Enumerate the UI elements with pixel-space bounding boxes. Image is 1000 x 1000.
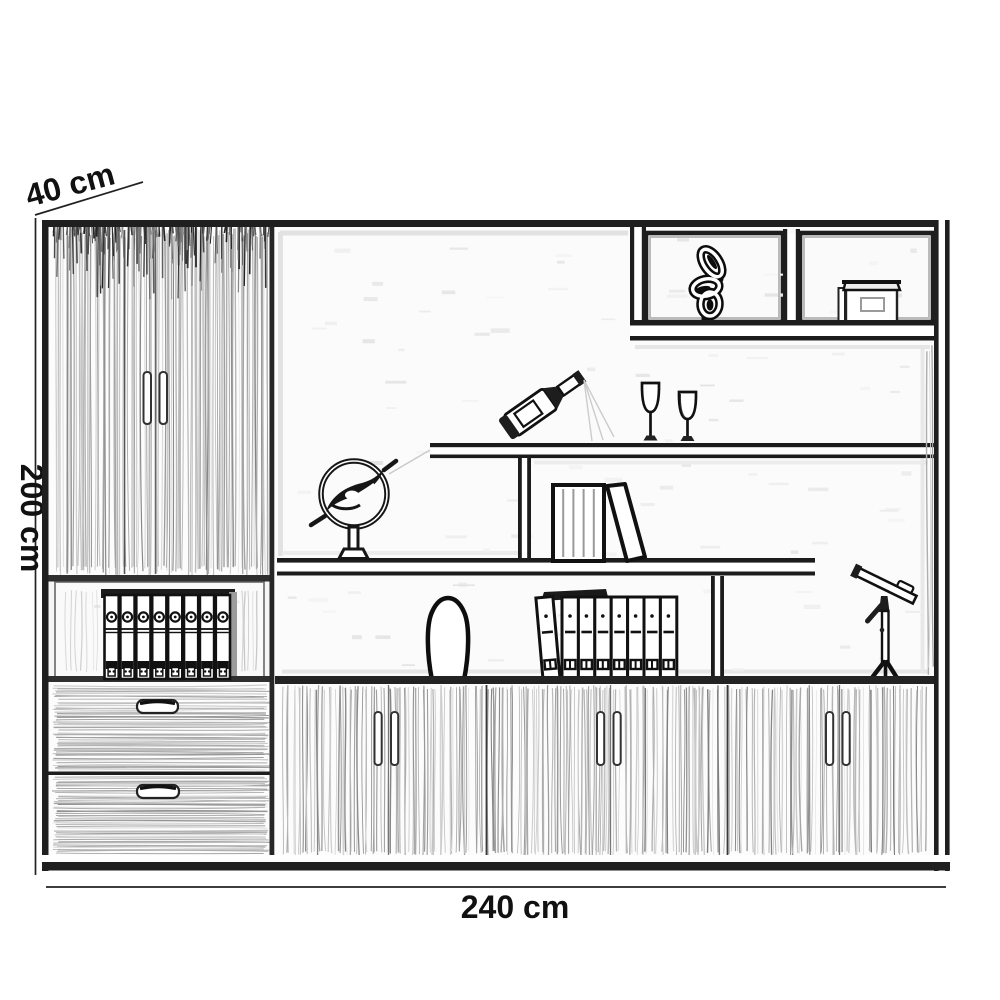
svg-text:240 cm: 240 cm [461,889,570,925]
